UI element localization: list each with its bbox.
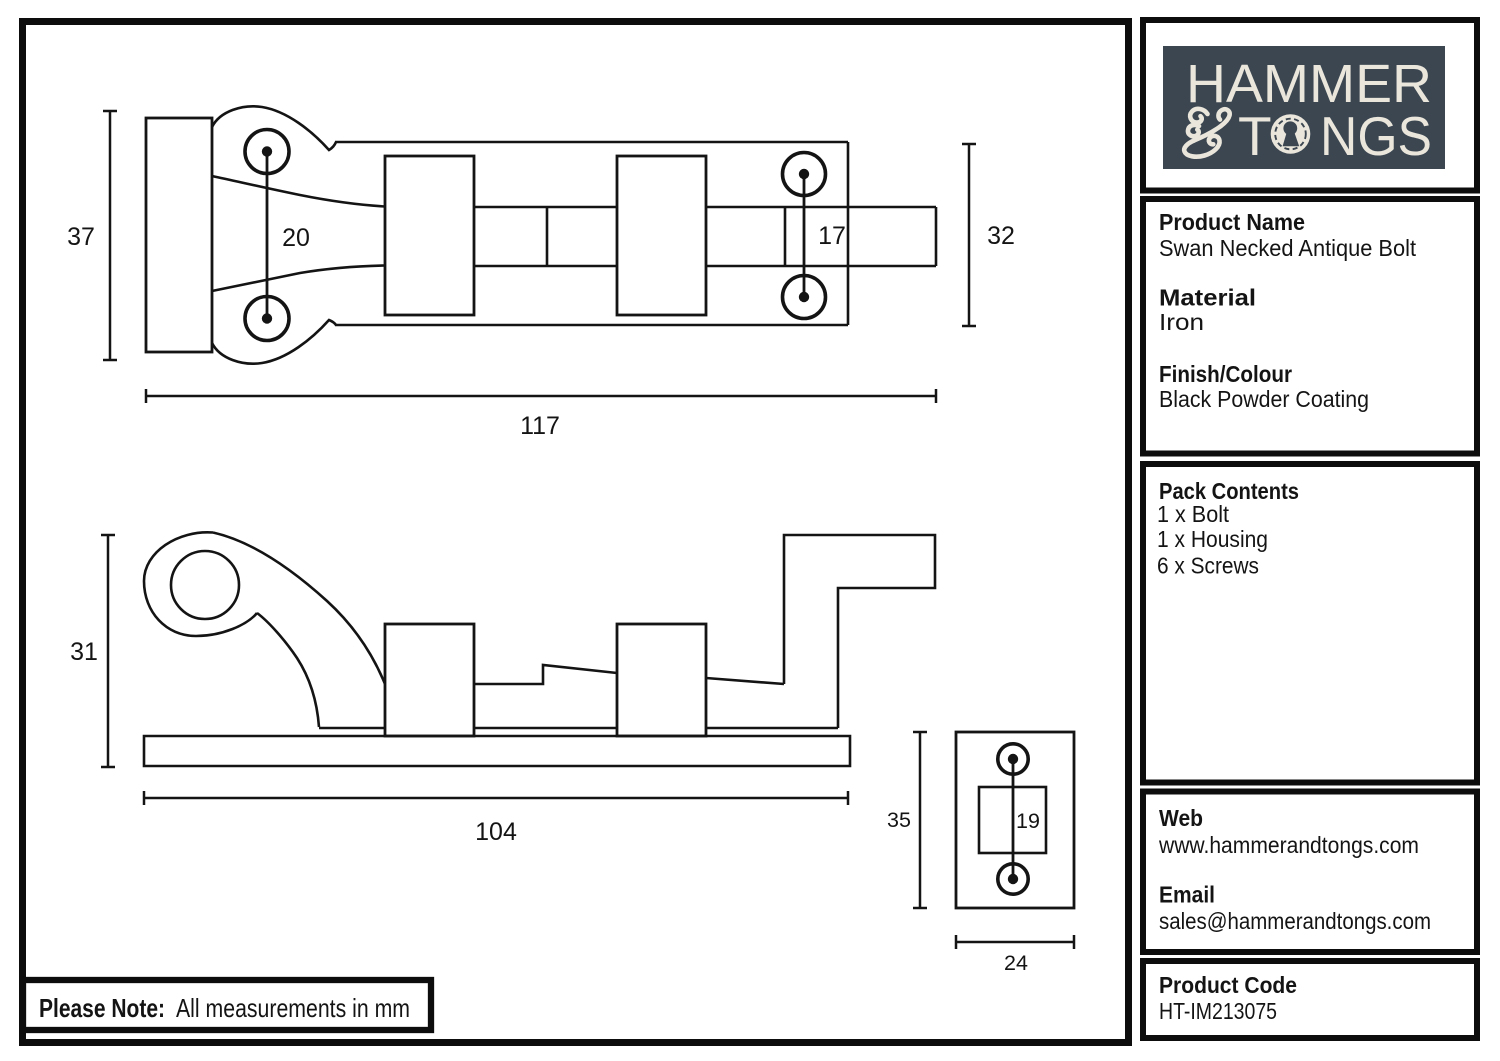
svg-text:117: 117 — [520, 412, 560, 440]
svg-text:NGS: NGS — [1320, 105, 1432, 167]
svg-text:Material: Material — [1159, 285, 1256, 311]
svg-text:1 x Housing: 1 x Housing — [1157, 526, 1268, 552]
svg-text:Swan Necked Antique Bolt: Swan Necked Antique Bolt — [1159, 235, 1417, 261]
svg-text:17: 17 — [818, 222, 846, 250]
svg-text:Finish/Colour: Finish/Colour — [1159, 361, 1292, 387]
svg-text:32: 32 — [987, 222, 1015, 250]
svg-text:35: 35 — [887, 808, 911, 832]
svg-text:31: 31 — [70, 638, 98, 666]
svg-text:Product Name: Product Name — [1159, 209, 1305, 235]
svg-text:Please Note:: Please Note: — [39, 993, 165, 1023]
svg-text:All measurements in mm: All measurements in mm — [176, 993, 410, 1023]
svg-text:24: 24 — [1004, 951, 1028, 975]
svg-text:19: 19 — [1016, 809, 1040, 833]
svg-text:37: 37 — [67, 223, 95, 251]
svg-text:sales@hammerandtongs.com: sales@hammerandtongs.com — [1159, 908, 1431, 934]
svg-text:1 x Bolt: 1 x Bolt — [1157, 501, 1230, 527]
svg-text:www.hammerandtongs.com: www.hammerandtongs.com — [1158, 832, 1419, 858]
svg-text:Iron: Iron — [1159, 309, 1204, 335]
svg-text:T: T — [1238, 105, 1272, 167]
svg-text:Black Powder Coating: Black Powder Coating — [1159, 386, 1369, 412]
svg-text:HT-IM213075: HT-IM213075 — [1159, 998, 1277, 1024]
svg-text:6 x Screws: 6 x Screws — [1157, 553, 1259, 579]
svg-text:Email: Email — [1159, 882, 1215, 908]
svg-text:20: 20 — [282, 224, 310, 252]
svg-text:Product Code: Product Code — [1159, 972, 1297, 998]
svg-text:Web: Web — [1159, 805, 1203, 831]
svg-text:104: 104 — [475, 818, 517, 846]
